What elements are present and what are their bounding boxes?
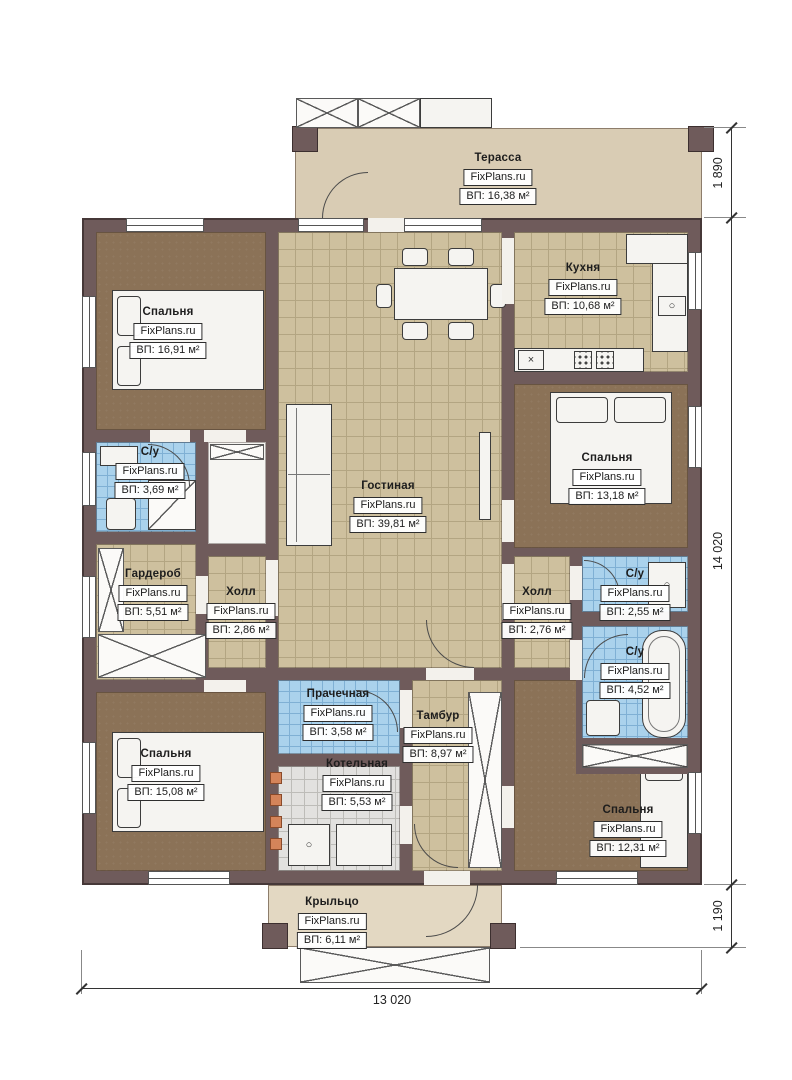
- door-gap-bedroom-tl: [204, 430, 246, 442]
- stove-icon: [596, 351, 614, 369]
- window-top-3: [404, 218, 482, 232]
- room-name: Кухня: [566, 262, 601, 274]
- sofa-line: [296, 408, 297, 542]
- room-area: ВП: 16,91 м²: [129, 342, 206, 359]
- room-label-living: Гостиная FixPlans.ru ВП: 39,81 м²: [349, 480, 426, 533]
- extension-line: [520, 947, 746, 948]
- window-right-2: [688, 406, 702, 468]
- room-label-bedroom-bl: Спальня FixPlans.ru ВП: 15,08 м²: [127, 748, 204, 801]
- sink-icon: ×: [518, 350, 544, 370]
- watermark: FixPlans.ru: [353, 497, 422, 514]
- watermark: FixPlans.ru: [303, 705, 372, 722]
- room-area: ВП: 5,51 м²: [117, 604, 188, 621]
- sofa: [286, 404, 332, 546]
- room-area: ВП: 13,18 м²: [568, 488, 645, 505]
- watermark: FixPlans.ru: [297, 913, 366, 930]
- window-left-2: [82, 452, 96, 506]
- terrace-stairs-hatch: [296, 98, 358, 128]
- room-area: ВП: 5,53 м²: [321, 794, 392, 811]
- room-label-wardrobe: Гардероб FixPlans.ru ВП: 5,51 м²: [117, 568, 188, 621]
- terrace-column: [292, 126, 318, 152]
- extension-line: [704, 217, 746, 218]
- terrace-step: [420, 98, 492, 128]
- room-area: ВП: 39,81 м²: [349, 516, 426, 533]
- pillow: [556, 397, 608, 423]
- door-gap-bath-left: [150, 430, 190, 442]
- chair: [376, 284, 392, 308]
- sofa-line: [288, 474, 330, 475]
- door-gap-bath-big: [570, 640, 582, 680]
- watermark: FixPlans.ru: [600, 585, 669, 602]
- toilet-icon: [106, 498, 136, 530]
- dimension-house-height: 14 020: [711, 516, 725, 586]
- door-gap-tambur-living: [426, 668, 474, 680]
- dimension-terrace-depth: 1 890: [711, 143, 725, 203]
- chair: [402, 248, 428, 266]
- porch-stairs-hatch: [300, 947, 490, 983]
- terrace-stairs-hatch: [358, 98, 420, 128]
- room-name: Крыльцо: [305, 896, 359, 908]
- closet-row: [582, 744, 688, 768]
- dining-table: [394, 268, 488, 320]
- cooktop-icon: ○: [658, 296, 686, 316]
- window-top-1: [126, 218, 204, 232]
- room-label-hall-left: Холл FixPlans.ru ВП: 2,86 м²: [205, 586, 276, 639]
- window-left-4: [82, 742, 96, 814]
- chair: [448, 322, 474, 340]
- stove-icon: [574, 351, 592, 369]
- window-bottom-1: [148, 871, 230, 885]
- room-name: С/у: [626, 568, 645, 580]
- watermark: FixPlans.ru: [463, 169, 532, 186]
- room-area: ВП: 4,52 м²: [599, 682, 670, 699]
- watermark: FixPlans.ru: [131, 765, 200, 782]
- dimension-line-right: [731, 128, 732, 948]
- window-left-1: [82, 296, 96, 368]
- boiler-unit: [336, 824, 392, 866]
- window-left-3: [82, 576, 96, 638]
- door-gap-bedroom-br: [502, 786, 514, 828]
- door-gap-bedroom-right: [502, 500, 514, 542]
- room-area: ВП: 3,69 м²: [114, 482, 185, 499]
- room-name: Холл: [522, 586, 552, 598]
- watermark: FixPlans.ru: [322, 775, 391, 792]
- room-label-hall-right: Холл FixPlans.ru ВП: 2,76 м²: [501, 586, 572, 639]
- room-label-bath-big: С/у FixPlans.ru ВП: 4,52 м²: [599, 646, 670, 699]
- room-area: ВП: 2,55 м²: [599, 604, 670, 621]
- room-name: С/у: [141, 446, 160, 458]
- room-name: Гостиная: [361, 480, 415, 492]
- watermark: FixPlans.ru: [572, 469, 641, 486]
- wardrobe-closet: [98, 634, 206, 678]
- room-label-kitchen: Кухня FixPlans.ru ВП: 10,68 м²: [544, 262, 621, 315]
- room-name: Гардероб: [125, 568, 181, 580]
- room-name: Спальня: [602, 804, 653, 816]
- radiator-segment: [270, 838, 282, 850]
- room-area: ВП: 6,11 м²: [297, 932, 367, 949]
- room-label-laundry: Прачечная FixPlans.ru ВП: 3,58 м²: [302, 688, 373, 741]
- door-gap-porch: [424, 871, 470, 885]
- extension-line: [704, 127, 746, 128]
- radiator-segment: [270, 816, 282, 828]
- room-label-bedroom-tl: Спальня FixPlans.ru ВП: 16,91 м²: [129, 306, 206, 359]
- watermark: FixPlans.ru: [115, 463, 184, 480]
- room-label-terrace: Терасса FixPlans.ru ВП: 16,38 м²: [459, 152, 536, 205]
- room-label-bedroom-right: Спальня FixPlans.ru ВП: 13,18 м²: [568, 452, 645, 505]
- floor-plan: × ○ ○ ○ Терасса FixPlans.ru ВП: 16,38 м²…: [0, 0, 792, 1080]
- chair: [402, 322, 428, 340]
- window-top-2: [298, 218, 364, 232]
- radiator-segment: [270, 772, 282, 784]
- watermark: FixPlans.ru: [593, 821, 662, 838]
- watermark: FixPlans.ru: [600, 663, 669, 680]
- lobby-shelf: [210, 444, 264, 460]
- room-area: ВП: 8,97 м²: [402, 746, 473, 763]
- room-name: Спальня: [142, 306, 193, 318]
- room-label-boiler: Котельная FixPlans.ru ВП: 5,53 м²: [321, 758, 392, 811]
- watermark: FixPlans.ru: [502, 603, 571, 620]
- room-area: ВП: 10,68 м²: [544, 298, 621, 315]
- door-gap-boiler: [400, 806, 412, 844]
- door-gap-bedroom-bl: [204, 680, 246, 692]
- watermark: FixPlans.ru: [548, 279, 617, 296]
- room-label-tambur: Тамбур FixPlans.ru ВП: 8,97 м²: [402, 710, 473, 763]
- room-label-bath-small: С/у FixPlans.ru ВП: 2,55 м²: [599, 568, 670, 621]
- dimension-line-bottom: [82, 988, 702, 989]
- room-label-bedroom-br: Спальня FixPlans.ru ВП: 12,31 м²: [589, 804, 666, 857]
- room-area: ВП: 2,86 м²: [205, 622, 276, 639]
- extension-line: [704, 884, 746, 885]
- chair: [448, 248, 474, 266]
- watermark: FixPlans.ru: [206, 603, 275, 620]
- window-right-3: [688, 772, 702, 834]
- room-name: Прачечная: [307, 688, 370, 700]
- room-area: ВП: 15,08 м²: [127, 784, 204, 801]
- watermark: FixPlans.ru: [403, 727, 472, 744]
- dimension-house-width: 13 020: [342, 993, 442, 1007]
- room-label-porch: Крыльцо FixPlans.ru ВП: 6,11 м²: [297, 896, 367, 949]
- window-bottom-2: [556, 871, 638, 885]
- room-name: С/у: [626, 646, 645, 658]
- fridge: [626, 234, 688, 264]
- room-name: Спальня: [581, 452, 632, 464]
- washer-icon: ○: [288, 824, 330, 866]
- room-area: ВП: 2,76 м²: [501, 622, 572, 639]
- tv-stand: [479, 432, 491, 520]
- dimension-porch-depth: 1 190: [711, 886, 725, 946]
- room-area: ВП: 3,58 м²: [302, 724, 373, 741]
- room-label-bath-left: С/у FixPlans.ru ВП: 3,69 м²: [114, 446, 185, 499]
- room-area: ВП: 12,31 м²: [589, 840, 666, 857]
- room-name: Холл: [226, 586, 256, 598]
- room-name: Спальня: [140, 748, 191, 760]
- watermark: FixPlans.ru: [133, 323, 202, 340]
- watermark: FixPlans.ru: [118, 585, 187, 602]
- room-name: Терасса: [474, 152, 521, 164]
- porch-column: [262, 923, 288, 949]
- room-name: Котельная: [326, 758, 388, 770]
- porch-column: [490, 923, 516, 949]
- window-right-1: [688, 252, 702, 310]
- room-area: ВП: 16,38 м²: [459, 188, 536, 205]
- radiator-segment: [270, 794, 282, 806]
- pillow: [614, 397, 666, 423]
- toilet-icon: [586, 700, 620, 736]
- room-name: Тамбур: [417, 710, 460, 722]
- opening-living-kitchen: [502, 238, 514, 304]
